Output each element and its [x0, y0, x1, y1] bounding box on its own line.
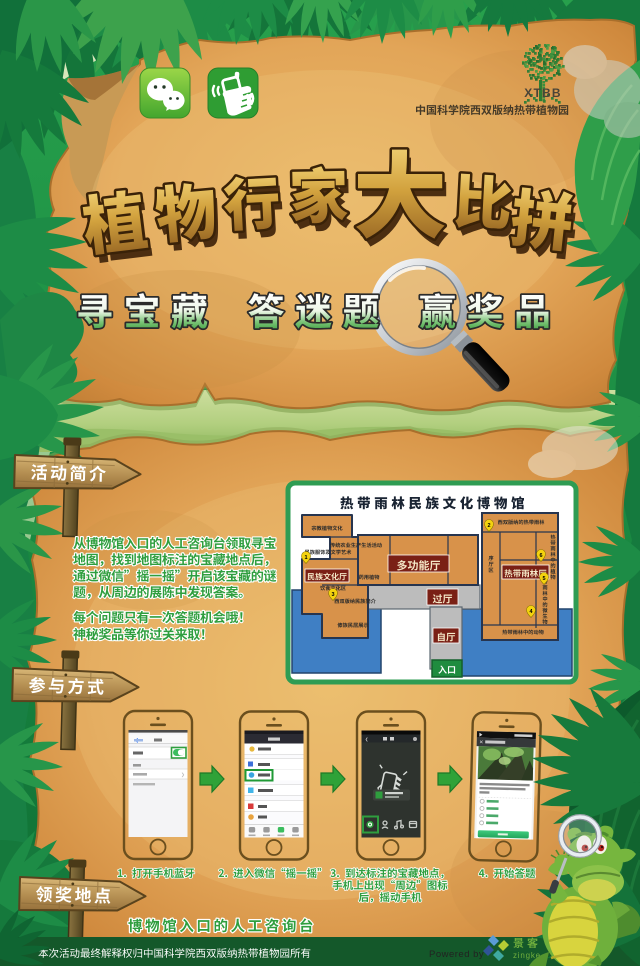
svg-text:✕: ✕: [479, 740, 483, 746]
svg-text:XTBB: XTBB: [524, 86, 561, 100]
svg-text:2: 2: [487, 523, 490, 529]
svg-text:❮: ❮: [365, 737, 368, 742]
svg-text:Powered by: Powered by: [429, 949, 484, 960]
svg-text:5: 5: [542, 576, 545, 582]
svg-text:6: 6: [539, 553, 542, 559]
svg-text:1: 1: [304, 555, 307, 561]
svg-text:3: 3: [331, 592, 334, 598]
